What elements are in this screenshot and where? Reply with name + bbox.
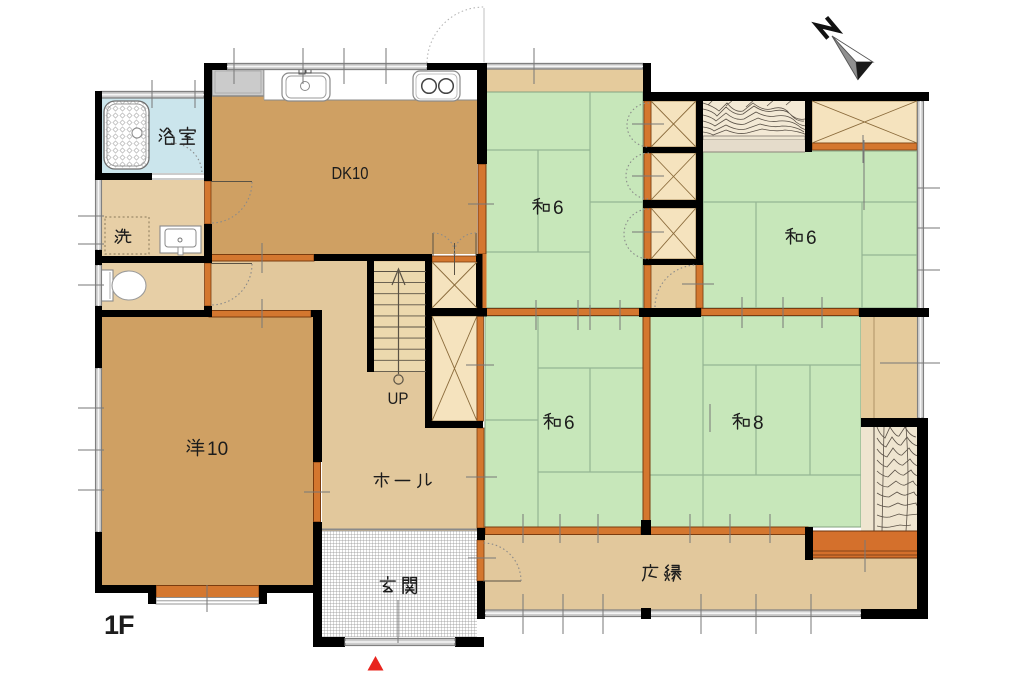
svg-text:UP: UP: [388, 389, 409, 408]
svg-text:6: 6: [553, 198, 564, 219]
svg-text:6: 6: [564, 413, 575, 434]
svg-text:1F: 1F: [104, 610, 134, 640]
svg-text:DK10: DK10: [332, 163, 369, 183]
svg-text:10: 10: [207, 439, 228, 460]
svg-text:8: 8: [753, 413, 764, 434]
svg-text:6: 6: [806, 228, 817, 249]
